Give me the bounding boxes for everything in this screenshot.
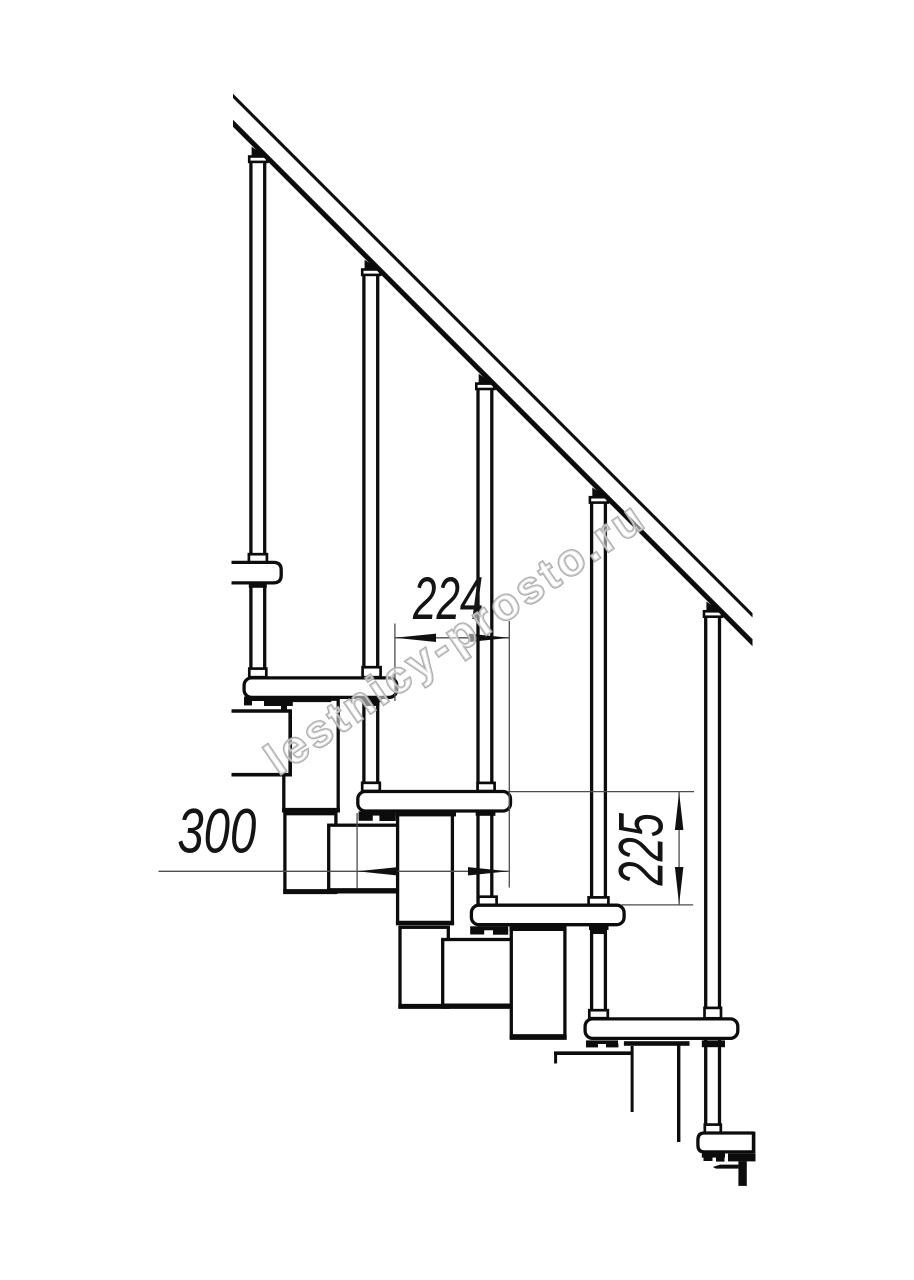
svg-text:300: 300 [177, 796, 256, 866]
svg-text:225: 225 [607, 812, 677, 886]
svg-text:lestnicy-prosto.ru: lestnicy-prosto.ru [255, 490, 655, 784]
